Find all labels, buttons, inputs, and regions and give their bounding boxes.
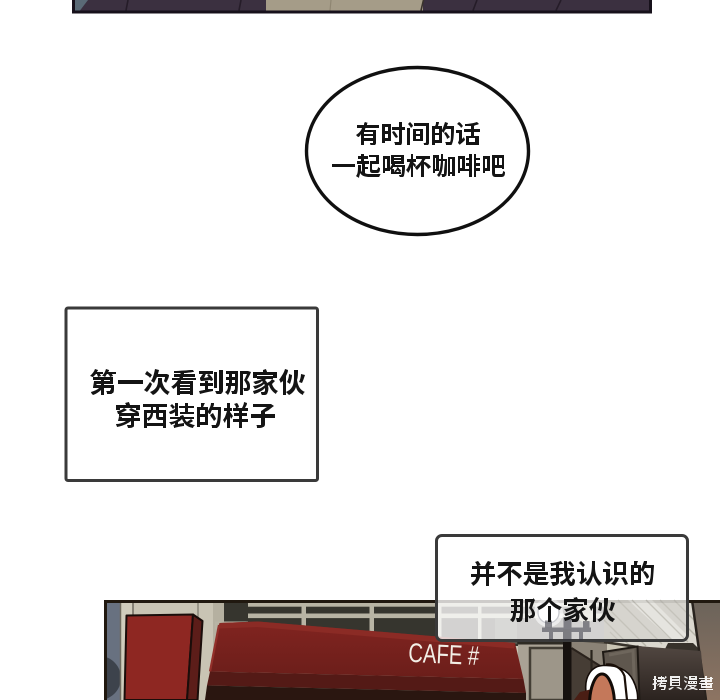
svg-text:CAFE #: CAFE # [408,638,481,672]
